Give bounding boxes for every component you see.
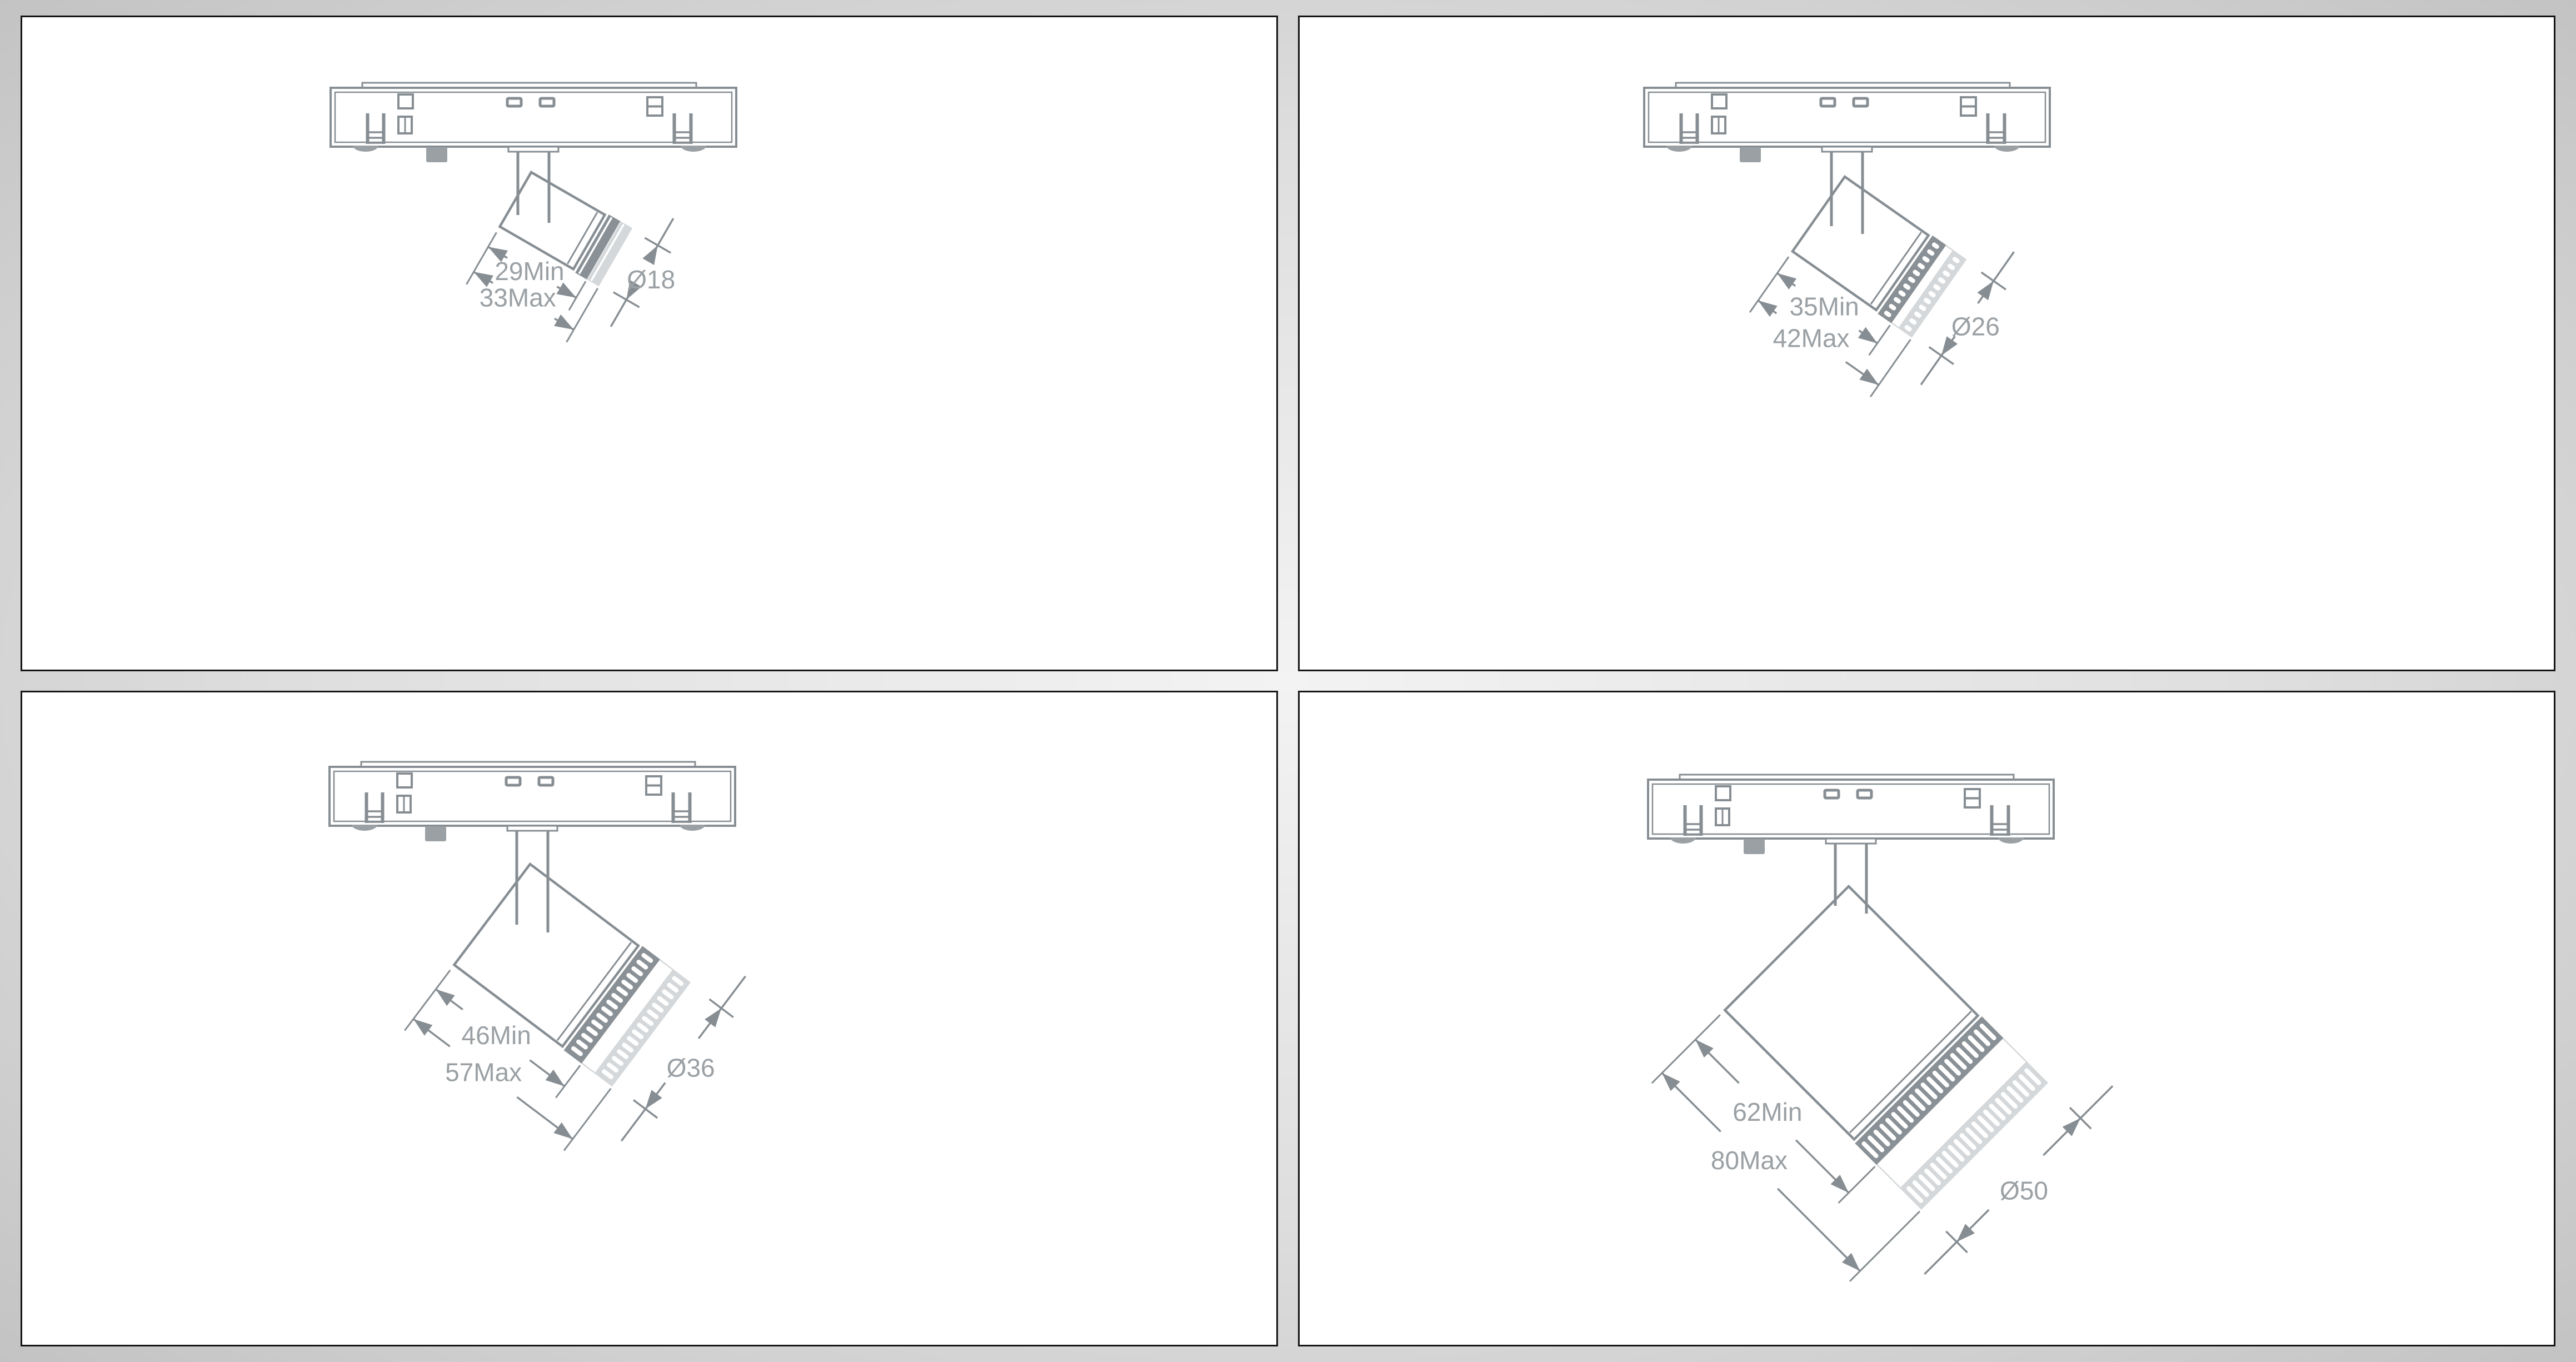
dim-label-length-min: 35Min	[1789, 292, 1859, 321]
dim-label-length-max: 80Max	[1711, 1146, 1788, 1175]
dim-label-length-min: 46Min	[461, 1021, 531, 1050]
foot-right	[1998, 837, 2024, 844]
spotlight-head: 29Min33MaxØ18	[458, 146, 707, 393]
spotlight-head: 46Min57MaxØ36	[392, 832, 777, 1214]
foot-left	[353, 146, 378, 152]
panel-top-right: 35Min42MaxØ26	[1298, 16, 2555, 671]
dim-label-diameter: Ø18	[627, 265, 675, 294]
track-adapter	[330, 762, 735, 841]
foot-right	[681, 146, 706, 152]
foot-left	[352, 825, 377, 831]
dim-label-length-min: 62Min	[1733, 1097, 1802, 1126]
dim-label-length-max: 42Max	[1773, 323, 1849, 352]
panel-bottom-right: 62Min80MaxØ50	[1298, 691, 2555, 1346]
foot-right	[680, 825, 705, 831]
spec-sheet: 29Min33MaxØ18 35Min42MaxØ26 46Min57MaxØ3…	[0, 0, 2576, 1362]
foot-left	[1670, 837, 1696, 844]
panel-top-left: 29Min33MaxØ18	[21, 16, 1278, 671]
fixture-drawing-top-right: 35Min42MaxØ26	[1300, 17, 2554, 670]
track-adapter	[1644, 83, 2050, 162]
fixture-drawing-top-left: 29Min33MaxØ18	[22, 17, 1276, 670]
dim-label-diameter: Ø26	[1951, 312, 2000, 341]
track-adapter	[331, 83, 736, 162]
track-adapter	[1648, 775, 2054, 854]
panel-bottom-left: 46Min57MaxØ36	[21, 691, 1278, 1346]
foot-right	[1994, 146, 2020, 152]
spotlight-head: 35Min42MaxØ26	[1739, 148, 2046, 456]
dim-label-length-max: 57Max	[445, 1057, 522, 1086]
foot-left	[1666, 146, 1692, 152]
dim-label-length-max: 33Max	[480, 283, 556, 312]
fixture-drawing-bottom-left: 46Min57MaxØ36	[22, 692, 1276, 1345]
fixture-drawing-bottom-right: 62Min80MaxØ50	[1300, 692, 2554, 1345]
dim-label-diameter: Ø50	[2000, 1176, 2048, 1205]
dim-label-diameter: Ø36	[667, 1053, 715, 1082]
dim-label-length-min: 29Min	[495, 257, 564, 286]
spotlight-head: 62Min80MaxØ50	[1635, 854, 2140, 1345]
